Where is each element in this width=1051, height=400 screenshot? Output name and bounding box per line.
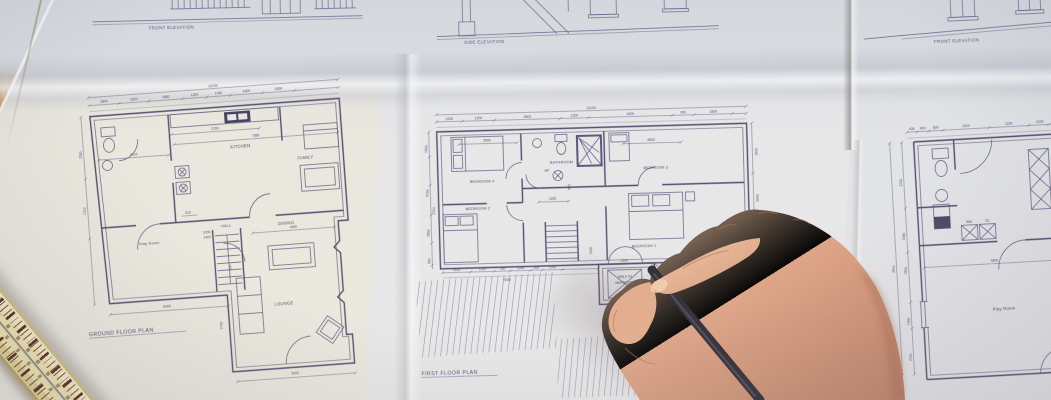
dim: 430 bbox=[909, 127, 915, 131]
dim: 2200 bbox=[621, 259, 629, 263]
dim: 1200 bbox=[191, 93, 199, 98]
dim: 2850 bbox=[426, 229, 431, 237]
dim: 4500 bbox=[647, 138, 655, 142]
elevation-middle-details bbox=[458, 0, 689, 36]
dim: 1550 bbox=[589, 247, 593, 255]
dim: 1600 bbox=[274, 86, 282, 91]
dim: 2800 bbox=[523, 115, 531, 119]
room-label-bedroom4: BEDROOM 4 bbox=[470, 179, 495, 184]
dim: 1250 bbox=[517, 266, 525, 270]
ground-floor-title: GROUND FLOOR PLAN bbox=[89, 328, 154, 339]
dim: 2800 bbox=[756, 194, 760, 202]
elevation-right-label: FRONT ELEVATION bbox=[934, 37, 980, 44]
room-label-bathroom: BATHROOM bbox=[550, 160, 573, 165]
dim: 1150 bbox=[549, 197, 557, 201]
dim: 1800 bbox=[100, 99, 108, 104]
elevation-left-label: FRONT ELEVATION bbox=[149, 25, 195, 31]
elevation-right: FRONT ELEVATION bbox=[842, 0, 1051, 54]
dim: 2250 bbox=[899, 179, 903, 187]
ground-floor-plan: 12100 1800 1810 2380 1200 1340 1800 1600… bbox=[16, 70, 370, 400]
dim: 1580 bbox=[902, 233, 906, 241]
dim: 2500 bbox=[904, 266, 908, 274]
elevation-middle: SIDE ELEVATION bbox=[418, 0, 729, 51]
room-label-walkin-1: WALK IN bbox=[618, 275, 632, 279]
dim: 7000 bbox=[503, 278, 511, 282]
fixtures-and-furniture bbox=[930, 136, 1051, 378]
first-floor-plan: 12100 1000 1200 2800 1200 3400 900 1600 … bbox=[398, 97, 806, 400]
ground-line bbox=[863, 22, 1051, 39]
dim: 800 bbox=[933, 126, 939, 130]
dim: 2210 bbox=[661, 270, 669, 274]
dim: 1430 bbox=[453, 268, 461, 272]
dim: 1910 bbox=[962, 124, 970, 128]
dim: 950 bbox=[567, 184, 571, 190]
ground-line bbox=[93, 16, 363, 22]
dim: 1800 bbox=[754, 148, 758, 156]
inner-wall-line bbox=[94, 103, 354, 377]
dim: 1450 bbox=[906, 317, 910, 325]
dim: 1800 bbox=[242, 89, 250, 94]
dim: 950 bbox=[427, 258, 431, 264]
dim: 2700 bbox=[219, 322, 223, 330]
dim: 1340 bbox=[215, 91, 223, 96]
dim: 1000 bbox=[203, 230, 211, 235]
dim: 610 bbox=[185, 211, 191, 215]
room-label-bedroom2: BEDROOM 2 bbox=[465, 206, 490, 211]
window bbox=[920, 301, 929, 327]
dim: 910 bbox=[228, 265, 232, 271]
dim: 6150 bbox=[425, 189, 430, 197]
photo-of-blueprints: FRONT ELEVATION SIDE ELEVATION FRONT ELE… bbox=[0, 0, 1051, 400]
dim: 4300 bbox=[290, 225, 298, 230]
dim-overall: 12100 bbox=[586, 106, 596, 110]
dim: 760 bbox=[500, 267, 506, 271]
dim: 900 bbox=[680, 110, 686, 114]
note-hp: HP bbox=[544, 169, 550, 173]
dim: 3500 bbox=[892, 265, 896, 273]
elevation-right-windows bbox=[947, 0, 1044, 21]
terrace-hatching-right bbox=[554, 327, 708, 399]
dim: 2350 bbox=[78, 151, 82, 159]
appliance-label-td: TD bbox=[985, 219, 990, 223]
room-label-bedroom1: BEDROOM 1 bbox=[632, 244, 657, 249]
elevation-left-windows bbox=[170, 0, 356, 16]
room-label-hall: HALL bbox=[221, 224, 232, 229]
room-label-playroom: Play Room bbox=[993, 306, 1016, 312]
ground-line bbox=[437, 26, 719, 37]
dim: 1320 bbox=[432, 207, 437, 215]
dim: 1200 bbox=[474, 116, 482, 120]
room-label-kitchen: KITCHEN bbox=[230, 143, 250, 149]
ground-line-2 bbox=[437, 29, 719, 40]
room-label-bedroom3: BEDROOM 3 bbox=[643, 165, 668, 170]
ground-line-2 bbox=[93, 18, 363, 25]
room-label-family: FAMILY bbox=[297, 154, 313, 160]
dim: 260 bbox=[534, 266, 540, 270]
dim: 1400 bbox=[203, 235, 211, 240]
dim: 2100 bbox=[1036, 120, 1044, 124]
dim: 3400 bbox=[626, 112, 634, 116]
dim: 1810 bbox=[130, 97, 138, 102]
dim: 4800 bbox=[990, 258, 998, 262]
dim: 7380 bbox=[252, 133, 260, 138]
elevation-middle-label: SIDE ELEVATION bbox=[464, 39, 504, 45]
dimension-lines bbox=[887, 123, 1051, 377]
dim: 1600 bbox=[424, 145, 429, 153]
appliance-label-wm: WM bbox=[966, 220, 972, 224]
dim: 2150 bbox=[908, 353, 912, 361]
fixtures-and-furniture bbox=[99, 103, 354, 377]
elevation-left: FRONT ELEVATION bbox=[84, 0, 375, 42]
dim-overall: 12100 bbox=[208, 84, 218, 89]
dim: 2100 bbox=[211, 126, 219, 131]
dim: 1200 bbox=[570, 113, 578, 117]
terrace-hatching-left bbox=[407, 269, 568, 367]
outer-walls bbox=[914, 134, 1051, 379]
right-partial-plan: 430 600 800 1910 1190 2100 2250 1580 250… bbox=[876, 104, 1051, 399]
dim: 1280 bbox=[549, 265, 557, 269]
dim: 2300 bbox=[651, 264, 659, 268]
dim: 2110 bbox=[645, 287, 649, 295]
dim: 1200 bbox=[479, 267, 487, 271]
room-label-lounge: LOUNGE bbox=[274, 300, 294, 306]
dim: 600 bbox=[920, 126, 926, 130]
dim: 1000 bbox=[446, 117, 454, 121]
dim: 5000 bbox=[291, 371, 299, 376]
dim: 1190 bbox=[1005, 121, 1013, 125]
room-label-walkin-2: WARDROBE bbox=[615, 280, 636, 285]
dim: 3500 bbox=[483, 138, 491, 142]
dim: 1600 bbox=[709, 110, 717, 114]
inner-wall-line bbox=[918, 138, 1051, 375]
room-label-playroom: Play Room bbox=[139, 241, 160, 246]
dim: 1320 bbox=[83, 207, 87, 215]
dim: 5300 bbox=[163, 304, 171, 309]
dim: 4110 bbox=[130, 152, 138, 157]
dim: 2380 bbox=[162, 95, 170, 100]
